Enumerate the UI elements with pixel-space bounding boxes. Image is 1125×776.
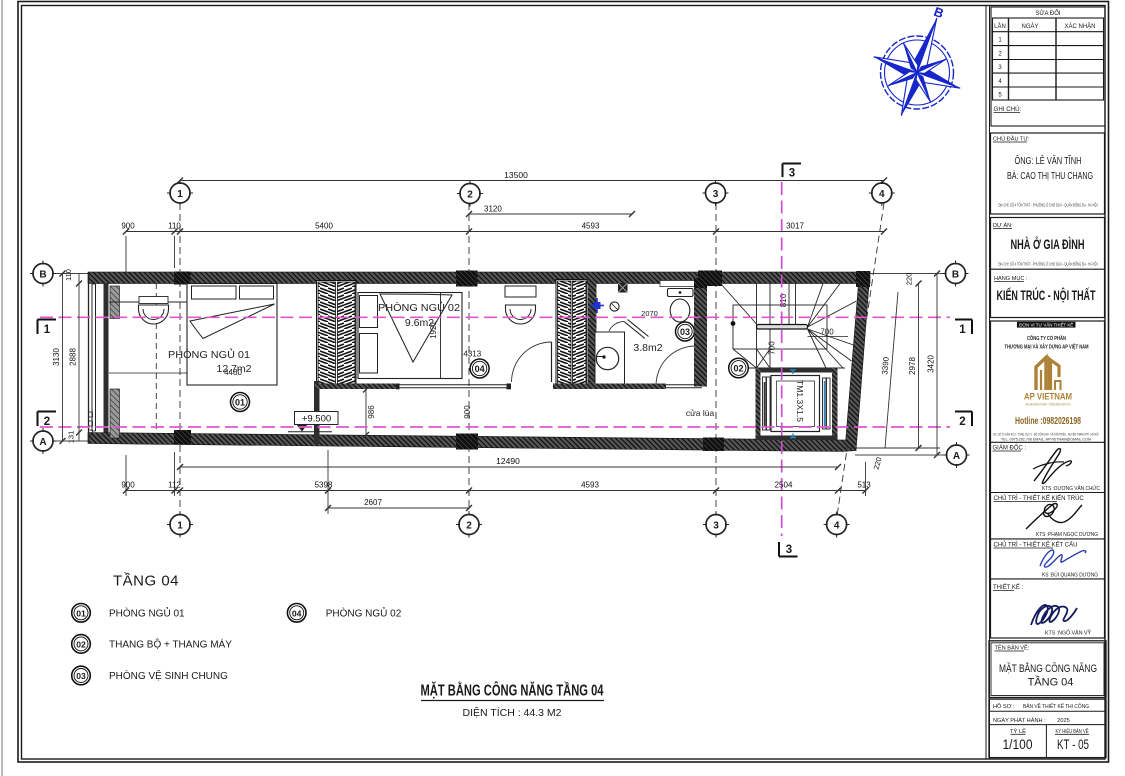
svg-text:1: 1 (177, 521, 183, 532)
svg-text:+9.500: +9.500 (302, 414, 331, 425)
svg-text:900: 900 (463, 405, 472, 419)
svg-text:NGÀY: NGÀY (1021, 23, 1038, 30)
svg-text:TẦNG 04: TẦNG 04 (113, 573, 179, 590)
svg-text:KS :BÙI QUANG DƯƠNG: KS :BÙI QUANG DƯƠNG (1042, 572, 1098, 579)
svg-text:PHÒNG NGỦ 01: PHÒNG NGỦ 01 (109, 607, 185, 620)
svg-text:2504: 2504 (775, 481, 793, 490)
svg-text:02: 02 (733, 364, 743, 374)
svg-text:BẢN VẼ THIẾT KẾ THI CÔNG: BẢN VẼ THIẾT KẾ THI CÔNG (1023, 703, 1089, 710)
svg-text:MẶT BẰNG CÔNG NĂNG: MẶT BẰNG CÔNG NĂNG (999, 662, 1097, 675)
svg-text:KTS :NGÔ VĂN VỸ: KTS :NGÔ VĂN VỸ (1045, 630, 1091, 637)
svg-text:ĐỊA CHỈ: SỐ 4 TÔN THẤT - PHƯỜN: ĐỊA CHỈ: SỐ 4 TÔN THẤT - PHƯỜNG Ô CHỢ DỪ… (999, 203, 1098, 208)
svg-text:2888: 2888 (69, 348, 78, 366)
svg-text:DIỆN TÍCH : 44.3 M2: DIỆN TÍCH : 44.3 M2 (462, 706, 561, 719)
svg-text:2: 2 (44, 416, 50, 428)
svg-text:2025: 2025 (1057, 718, 1069, 724)
svg-text:3017: 3017 (786, 222, 804, 231)
svg-text:KT - 05: KT - 05 (1057, 737, 1089, 752)
svg-text:GHI CHÚ:: GHI CHÚ: (994, 106, 1022, 113)
svg-text:BÀ: CAO THỊ THU CHANG: BÀ: CAO THỊ THU CHANG (1007, 169, 1093, 182)
svg-text:ÔNG: LÊ VĂN TĨNH: ÔNG: LÊ VĂN TĨNH (1015, 154, 1082, 167)
svg-text:LẦN: LẦN (994, 23, 1006, 30)
svg-text:131: 131 (67, 431, 76, 444)
svg-text:02: 02 (76, 639, 86, 649)
svg-text:AN GIA HƯNG THỊNH - VỮNG BỀN K: AN GIA HƯNG THỊNH - VỮNG BỀN KIẾN TẠO (1026, 402, 1071, 407)
svg-text:5400: 5400 (315, 222, 333, 231)
svg-text:TÊN BẢN VẼ:: TÊN BẢN VẼ: (995, 644, 1030, 652)
svg-text:04: 04 (475, 364, 485, 374)
svg-text:HỒ SƠ :: HỒ SƠ : (993, 703, 1015, 710)
svg-text:03: 03 (680, 327, 690, 337)
svg-text:12490: 12490 (496, 456, 520, 466)
svg-text:A: A (953, 451, 960, 462)
svg-text:KTS :PHẠM NGỌC DƯƠNG: KTS :PHẠM NGỌC DƯƠNG (1036, 532, 1098, 538)
svg-text:110: 110 (168, 222, 181, 231)
svg-text:2: 2 (467, 190, 473, 201)
svg-text:3130: 3130 (52, 348, 61, 366)
svg-text:3: 3 (713, 189, 719, 200)
svg-text:5398: 5398 (315, 481, 333, 490)
svg-text:B: B (952, 270, 959, 281)
svg-text:900: 900 (121, 222, 135, 231)
svg-text:MẶT BẰNG CÔNG NĂNG TẦNG 04: MẶT BẰNG CÔNG NĂNG TẦNG 04 (421, 682, 604, 700)
svg-text:PHÒNG NGỦ 02: PHÒNG NGỦ 02 (378, 301, 460, 314)
svg-text:04: 04 (292, 608, 302, 618)
svg-text:2978: 2978 (908, 357, 917, 375)
svg-text:4480: 4480 (224, 368, 242, 377)
svg-text:AP VIETNAM: AP VIETNAM (1024, 392, 1072, 402)
svg-text:GIÁM ĐỐC :: GIÁM ĐỐC : (993, 445, 1027, 452)
svg-text:4593: 4593 (581, 481, 599, 490)
svg-text:TẦNG 04: TẦNG 04 (1028, 676, 1074, 689)
svg-text:TỶ LỆ: TỶ LỆ (1010, 727, 1026, 735)
svg-text:986: 986 (367, 405, 376, 419)
svg-text:4593: 4593 (582, 222, 600, 231)
svg-text:ĐỊA CHỈ: SỐ 4 TÔN THẤT - PHƯỜN: ĐỊA CHỈ: SỐ 4 TÔN THẤT - PHƯỜNG Ô CHỢ DỪ… (999, 262, 1098, 267)
svg-text:KÝ HIỆU BẢN VẼ: KÝ HIỆU BẢN VẼ (1056, 727, 1089, 735)
svg-text:ĐƠN VỊ TƯ VẤN THIẾT KẾ: ĐƠN VỊ TƯ VẤN THIẾT KẾ (1019, 322, 1073, 328)
svg-text:4: 4 (879, 189, 885, 200)
svg-text:Hotline :0982026198: Hotline :0982026198 (1015, 415, 1081, 427)
svg-text:THIẾT KẾ :: THIẾT KẾ : (993, 584, 1024, 591)
svg-text:DỰ ÁN:: DỰ ÁN: (993, 222, 1013, 229)
svg-text:TEL: 0975.282.796 EMA: TEL: 0975.282.796 EMAIL: APVIETNAM@GMAIL… (1001, 437, 1091, 442)
svg-text:700: 700 (768, 341, 777, 355)
svg-text:CHỦ ĐẦU TƯ:: CHỦ ĐẦU TƯ: (993, 136, 1030, 143)
svg-text:3: 3 (786, 544, 792, 556)
svg-text:CHỦ TRÌ - THIẾT KẾ KẾT CẤU: CHỦ TRÌ - THIẾT KẾ KẾT CẤU (994, 542, 1078, 549)
svg-text:13500: 13500 (504, 170, 528, 180)
svg-text:4: 4 (834, 521, 840, 532)
svg-text:900: 900 (121, 481, 135, 490)
svg-text:3390: 3390 (880, 356, 891, 375)
svg-text:3.8m2: 3.8m2 (633, 342, 662, 354)
svg-text:1: 1 (44, 324, 51, 336)
svg-text:3: 3 (713, 521, 719, 532)
svg-text:1: 1 (177, 189, 183, 200)
svg-text:cửa lùa: cửa lùa (686, 408, 715, 418)
svg-text:700: 700 (820, 328, 834, 337)
svg-text:B: B (39, 270, 46, 281)
svg-text:1921: 1921 (429, 321, 438, 339)
svg-text:THANG BỘ + THANG MÁY: THANG BỘ + THANG MÁY (109, 638, 232, 651)
svg-text:01: 01 (76, 608, 86, 618)
svg-text:3: 3 (789, 168, 795, 180)
svg-text:810: 810 (779, 293, 788, 307)
svg-text:PHÒNG NGỦ 02: PHÒNG NGỦ 02 (326, 607, 402, 620)
svg-text:NGÀY PHÁT HÀNH :: NGÀY PHÁT HÀNH : (993, 717, 1046, 724)
svg-text:3420: 3420 (927, 355, 936, 373)
svg-text:PHÒNG NGỦ 01: PHÒNG NGỦ 01 (168, 348, 250, 361)
svg-text:XÁC NHẬN: XÁC NHẬN (1064, 23, 1095, 30)
svg-text:NHÀ Ở GIA ĐÌNH: NHÀ Ở GIA ĐÌNH (1011, 235, 1085, 252)
svg-text:3120: 3120 (484, 205, 502, 214)
svg-text:2607: 2607 (364, 498, 382, 507)
svg-text:513: 513 (857, 481, 871, 490)
svg-text:THƯƠNG MẠI VÀ XÂY DỰNG AP VIỆT: THƯƠNG MẠI VÀ XÂY DỰNG AP VIỆT NAM (1005, 343, 1089, 351)
svg-text:CÔNG TY CỔ PHẦN: CÔNG TY CỔ PHẦN (1027, 334, 1066, 342)
svg-text:CHỦ TRÌ - THIẾT KẾ KIẾN TRÚC: CHỦ TRÌ - THIẾT KẾ KIẾN TRÚC (994, 495, 1085, 502)
svg-text:PHÒNG VỆ SINH CHUNG: PHÒNG VỆ SINH CHUNG (109, 669, 228, 682)
svg-text:01: 01 (235, 398, 245, 408)
svg-text:1: 1 (959, 324, 966, 336)
svg-text:4313: 4313 (463, 350, 481, 359)
svg-text:TM1.3X1.5: TM1.3X1.5 (795, 380, 804, 423)
svg-text:KTS :DƯƠNG VĂN CHỨC: KTS :DƯƠNG VĂN CHỨC (1042, 485, 1100, 492)
svg-text:A: A (39, 437, 46, 448)
svg-text:2: 2 (466, 521, 472, 532)
svg-text:1/100: 1/100 (1003, 737, 1033, 752)
svg-text:112: 112 (168, 481, 181, 490)
svg-text:2: 2 (959, 416, 965, 428)
svg-text:03: 03 (76, 671, 86, 681)
svg-text:110: 110 (64, 269, 73, 281)
svg-text:220: 220 (905, 273, 914, 286)
svg-text:SỬA ĐỔI: SỬA ĐỔI (1035, 10, 1060, 17)
svg-text:KIẾN TRÚC - NỘI THẤT: KIẾN TRÚC - NỘI THẤT (997, 288, 1096, 303)
